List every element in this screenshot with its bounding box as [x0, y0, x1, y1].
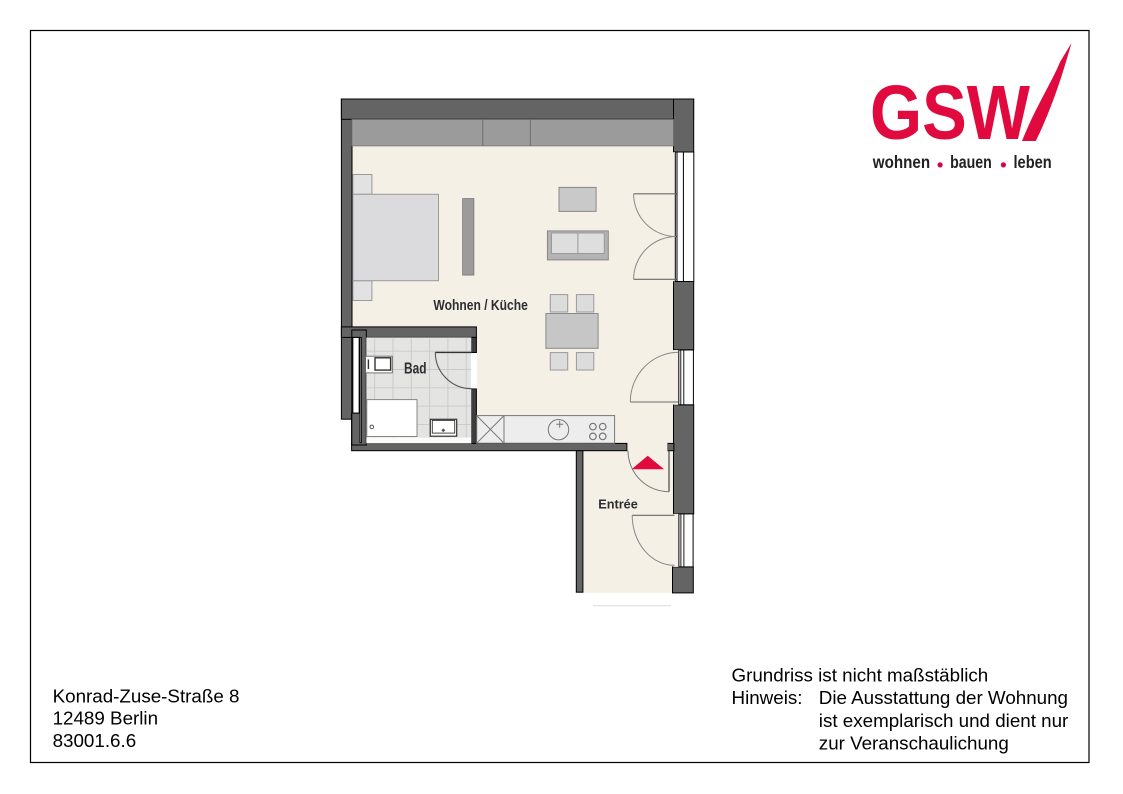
svg-text:Hinweis:: Hinweis:	[732, 687, 803, 708]
svg-text:bauen: bauen	[950, 152, 992, 172]
svg-text:GSW: GSW	[870, 70, 1030, 156]
svg-text:Die Ausstattung der Wohnung: Die Ausstattung der Wohnung	[819, 687, 1068, 708]
svg-text:Grundriss ist nicht maßstäblic: Grundriss ist nicht maßstäblich	[732, 665, 989, 686]
svg-text:Bad: Bad	[404, 360, 427, 377]
svg-text:Entrée: Entrée	[598, 497, 638, 512]
svg-text:83001.6.6: 83001.6.6	[53, 730, 137, 751]
svg-text:zur Veranschaulichung: zur Veranschaulichung	[819, 733, 1009, 754]
svg-text:leben: leben	[1014, 152, 1052, 172]
svg-text:Wohnen / Küche: Wohnen / Küche	[433, 297, 528, 314]
svg-text:12489 Berlin: 12489 Berlin	[53, 708, 158, 729]
svg-text:ist exemplarisch und dient nur: ist exemplarisch und dient nur	[819, 710, 1069, 731]
svg-text:Konrad-Zuse-Straße 8: Konrad-Zuse-Straße 8	[53, 686, 240, 707]
svg-text:wohnen: wohnen	[872, 152, 930, 172]
